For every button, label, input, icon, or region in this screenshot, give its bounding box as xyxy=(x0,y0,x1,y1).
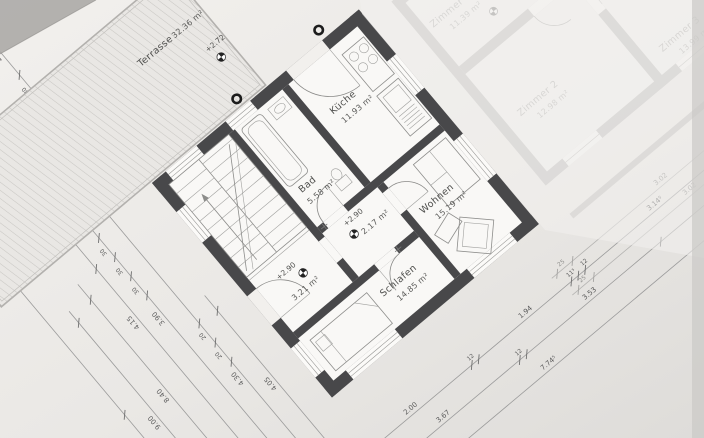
blueprint-photo: 4.05 4.30 20 20 3.90 30 30 30 4.15 8.40 … xyxy=(0,0,704,438)
floorplan: 4.05 4.30 20 20 3.90 30 30 30 4.15 8.40 … xyxy=(0,0,704,438)
paper-edge-shadow xyxy=(692,0,704,438)
